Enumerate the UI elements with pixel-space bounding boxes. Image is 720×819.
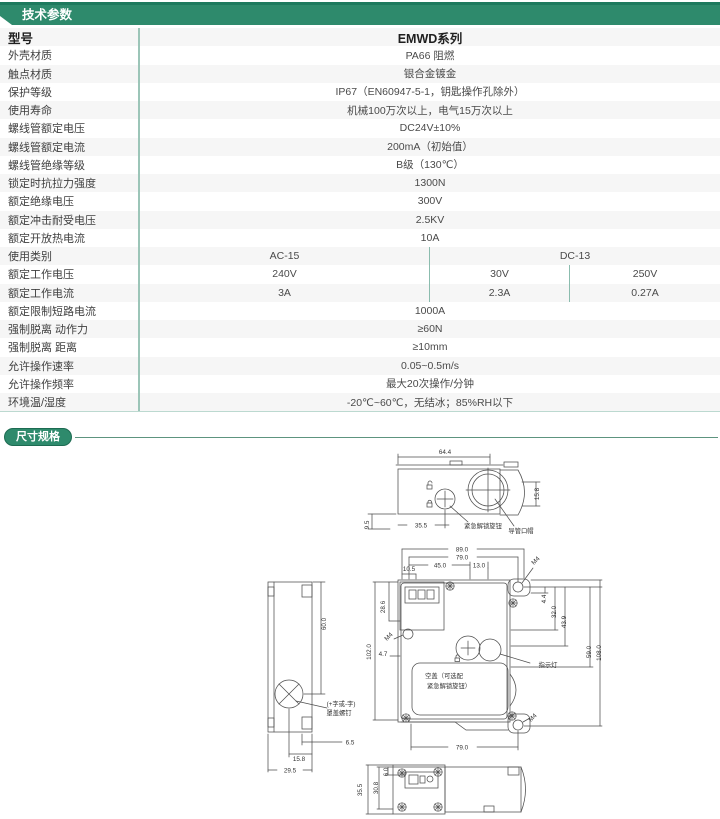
row-label: 额定绝缘电压 [0,192,140,210]
table-row: 螺线管额定电压DC24V±10% [0,119,720,137]
row-value: 2.3A [430,284,570,302]
row-value: PA66 阻燃 [140,46,720,64]
dimension-label: 紧急解锁旋钮） [427,681,471,690]
table-row: 允许操作频率最大20次操作/分钟 [0,375,720,393]
dimension-label: M4 [383,631,394,642]
row-value: B级（130℃） [140,156,720,174]
row-value: 200mA（初始值） [140,138,720,156]
tech-params-banner: 技术参数 [0,5,720,25]
table-row: 额定工作电流3A2.3A0.27A [0,284,720,302]
row-value: 10A [140,229,720,247]
dimension-label: 59.0 [586,645,593,658]
row-label: 强制脱离 动作力 [0,320,140,338]
dimension-label: 罩盖螺钉 [326,708,352,717]
row-value: 300V [140,192,720,210]
dimension-label: (+字或-字) [327,699,356,708]
row-value: 机械100万次以上，电气15万次以上 [140,101,720,119]
row-value: 240V [140,265,430,283]
row-value: EMWD系列 [140,28,720,46]
dimension-label: 13.0 [473,563,486,570]
table-row: 型号EMWD系列 [0,28,720,46]
row-value: 3A [140,284,430,302]
table-row: 螺线管绝缘等级B级（130℃） [0,156,720,174]
dimension-label: 79.0 [456,555,469,562]
dimension-label: 45.0 [434,563,447,570]
dimension-label: 29.5 [284,768,297,775]
table-row: 环境温/湿度-20℃~60℃，无结冰；85%RH以下 [0,393,720,411]
dimension-label: 4.4 [541,594,548,603]
table-row: 额定限制短路电流1000A [0,302,720,320]
dimension-label: 导管口帽 [508,526,533,535]
dimension-drawings: 64.415.89.535.5紧急解锁旋钮导管口帽89.079.045.013.… [0,442,720,819]
row-value: 250V [570,265,720,283]
tech-table: 型号EMWD系列外壳材质PA66 阻燃触点材质银合金镀金保护等级IP67（EN6… [0,28,720,412]
row-label: 使用类别 [0,247,140,265]
row-label: 允许操作频率 [0,375,140,393]
row-value: 银合金镀金 [140,65,720,83]
row-value: 30V [430,265,570,283]
table-row: 外壳材质PA66 阻燃 [0,46,720,64]
dimension-label: 32.0 [551,605,558,618]
dimension-label: 15.8 [534,487,541,500]
dimension-label: 空盖（可选配 [425,671,463,680]
dimension-label: 紧急解锁旋钮 [464,521,502,530]
dimension-label: 4.7 [379,651,388,658]
row-label: 强制脱离 距离 [0,338,140,356]
dim-header-rule [75,437,718,438]
row-value: -20℃~60℃，无结冰；85%RH以下 [140,393,720,411]
row-label: 额定工作电流 [0,284,140,302]
row-label: 环境温/湿度 [0,393,140,411]
table-row: 额定绝缘电压300V [0,192,720,210]
row-value: 最大20次操作/分钟 [140,375,720,393]
row-label: 触点材质 [0,65,140,83]
row-label: 螺线管额定电压 [0,119,140,137]
row-value: 1300N [140,174,720,192]
drawing-side-view [368,454,540,529]
dimension-label: 64.4 [439,449,452,456]
row-value: ≥60N [140,320,720,338]
row-value: 0.05~0.5m/s [140,357,720,375]
dimension-label: M4 [530,555,541,566]
row-value: ≥10mm [140,338,720,356]
table-row: 螺线管额定电流200mA（初始值） [0,138,720,156]
row-label: 额定冲击耐受电压 [0,211,140,229]
row-label: 额定限制短路电流 [0,302,140,320]
table-row: 使用类别AC-15DC-13 [0,247,720,265]
top-accent-bar [0,2,720,5]
drawing-front-view [268,549,602,772]
table-row: 使用寿命机械100万次以上，电气15万次以上 [0,101,720,119]
dimension-label: 30.8 [373,781,380,794]
dimension-label: 102.0 [366,644,373,660]
row-value: 0.27A [570,284,720,302]
row-value: 2.5KV [140,211,720,229]
dimension-label: 10.5 [403,566,416,573]
dimension-label: M4 [527,712,538,723]
tech-params-title: 技术参数 [22,8,72,22]
row-label: 额定工作电压 [0,265,140,283]
row-label: 外壳材质 [0,46,140,64]
dimension-label: 6.0 [383,767,390,776]
table-row: 允许操作速率0.05~0.5m/s [0,357,720,375]
row-label: 额定开放热电流 [0,229,140,247]
dimension-label: 6.5 [346,740,355,747]
dimension-label: 108.0 [596,645,603,661]
dimension-label: 15.8 [293,756,306,763]
dimension-label: 79.0 [456,745,469,752]
dimension-label: 89.0 [456,547,469,554]
table-row: 强制脱离 距离≥10mm [0,338,720,356]
row-label: 型号 [0,28,140,46]
dimension-label: 28.6 [380,600,387,613]
row-label: 锁定时抗拉力强度 [0,174,140,192]
dimension-label: 43.9 [561,615,568,628]
row-label: 螺线管额定电流 [0,138,140,156]
row-value: DC-13 [430,247,720,265]
row-value: 1000A [140,302,720,320]
dimension-label: 35.5 [415,523,428,530]
dimension-label: 35.5 [357,783,364,796]
table-row: 锁定时抗拉力强度1300N [0,174,720,192]
table-row: 额定开放热电流10A [0,229,720,247]
row-label: 使用寿命 [0,101,140,119]
dimension-label: 60.0 [321,617,328,630]
spec-page: 技术参数 型号EMWD系列外壳材质PA66 阻燃触点材质银合金镀金保护等级IP6… [0,2,720,446]
row-label: 允许操作速率 [0,357,140,375]
table-row: 额定工作电压240V30V250V [0,265,720,283]
row-value: AC-15 [140,247,430,265]
table-row: 额定冲击耐受电压2.5KV [0,211,720,229]
row-label: 螺线管绝缘等级 [0,156,140,174]
row-label: 保护等级 [0,83,140,101]
dimension-label: 指示灯 [539,660,559,669]
row-value: IP67（EN60947-5-1，钥匙操作孔除外） [140,83,720,101]
table-row: 强制脱离 动作力≥60N [0,320,720,338]
table-row: 触点材质银合金镀金 [0,65,720,83]
dimension-label: 9.5 [364,520,371,529]
row-value: DC24V±10% [140,119,720,137]
table-row: 保护等级IP67（EN60947-5-1，钥匙操作孔除外） [0,83,720,101]
